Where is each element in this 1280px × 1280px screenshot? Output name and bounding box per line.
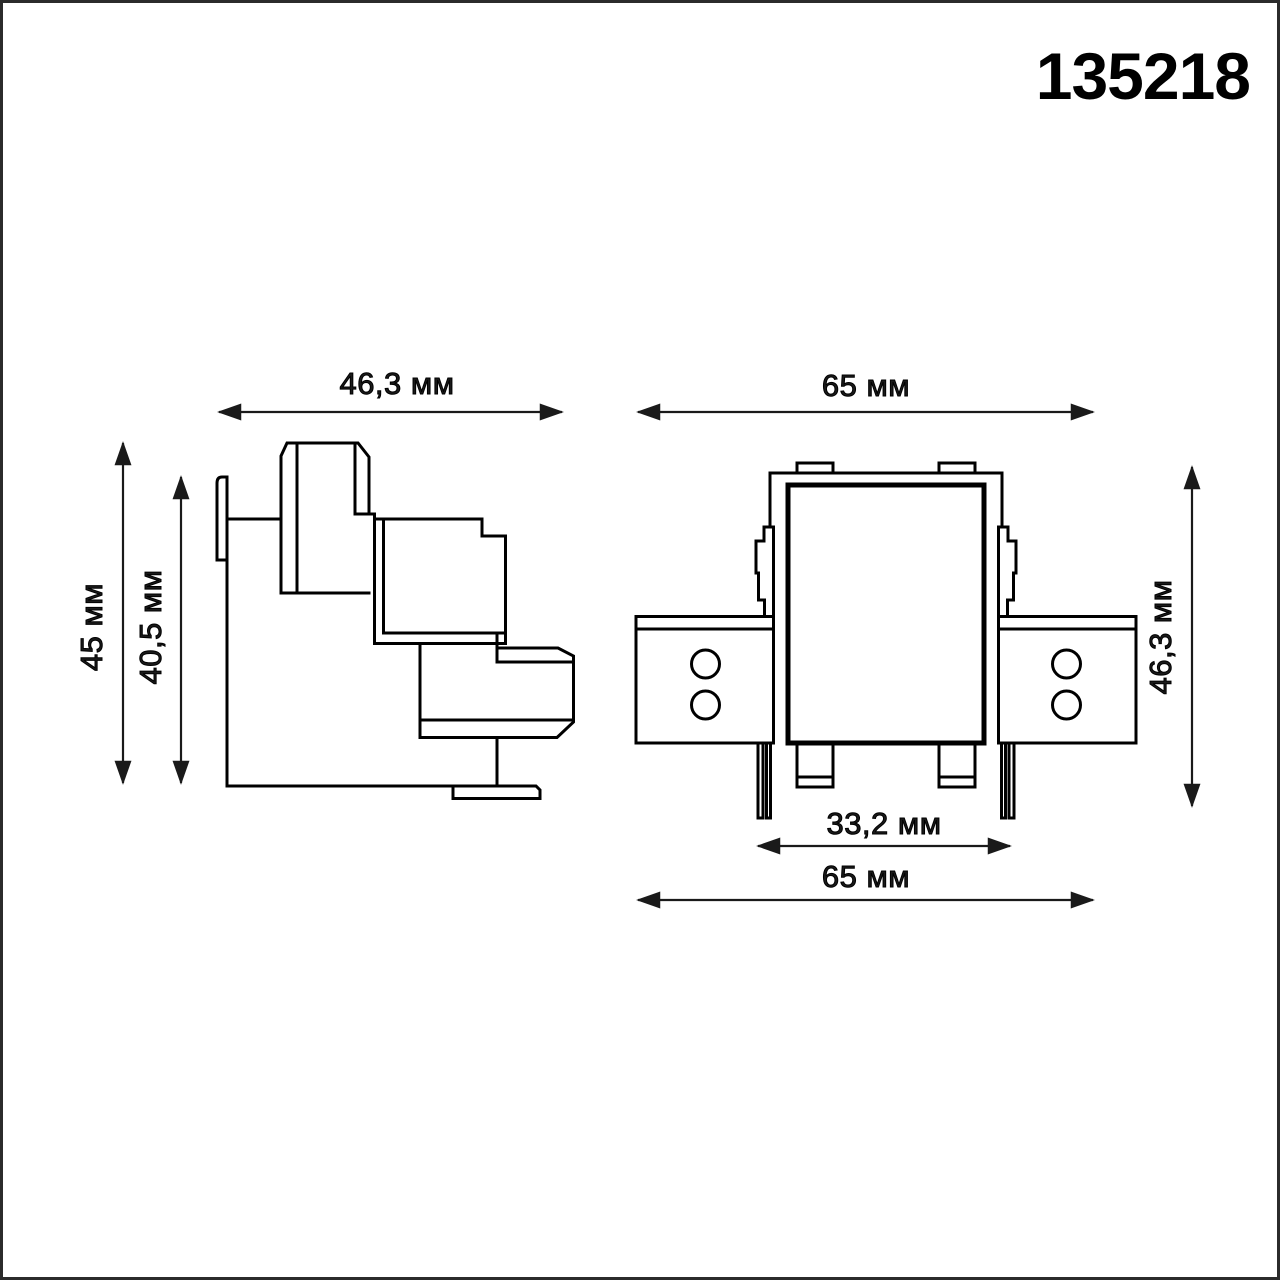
front-view-width-bottom-label: 65 мм xyxy=(822,859,910,894)
side-view-height-overall-label: 45 мм xyxy=(74,583,109,671)
front-view-width-top-label: 65 мм xyxy=(822,368,910,403)
front-view-width-inner-label: 33,2 мм xyxy=(826,806,941,841)
side-view-width-label: 46,3 мм xyxy=(339,366,454,401)
article-number: 135218 xyxy=(1036,39,1250,113)
page-background xyxy=(0,0,1280,1280)
front-view-height-label: 46,3 мм xyxy=(1143,579,1178,694)
side-view-height-inner-label: 40,5 мм xyxy=(133,569,168,684)
technical-drawing-canvas: 135218 46,3 мм 45 мм xyxy=(0,0,1280,1280)
